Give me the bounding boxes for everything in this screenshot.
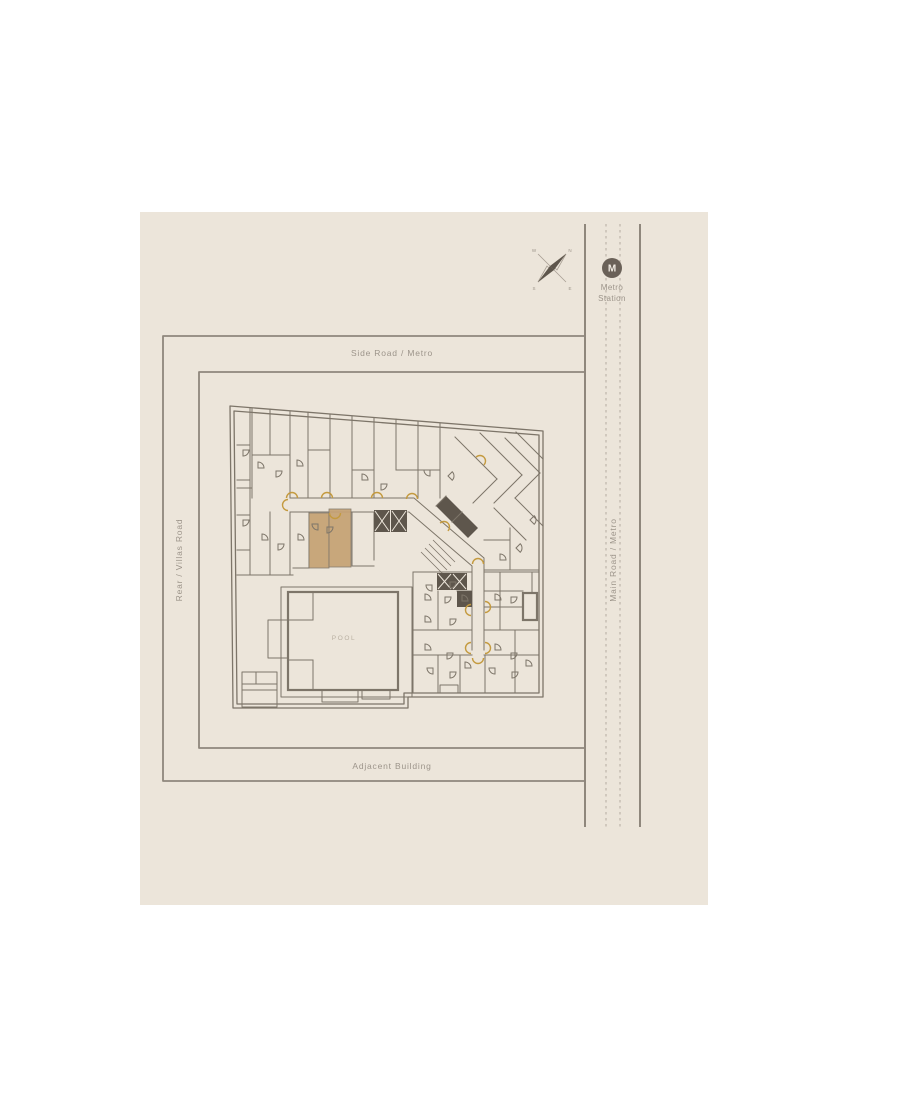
compass-north-label: N — [568, 248, 571, 253]
metro-station-line2: Station — [598, 294, 626, 303]
pool-label: POOL — [332, 635, 356, 642]
main-road-label: Main Road / Metro — [608, 518, 618, 602]
rear-road-label: Rear / Villas Road — [174, 519, 184, 602]
site-plan-page: Side Road / Metro Adjacent Building Rear… — [0, 0, 900, 1117]
highlighted-unit-room-1 — [309, 513, 329, 568]
site-panel-background — [140, 212, 708, 905]
side-road-label: Side Road / Metro — [351, 348, 433, 358]
compass-east-label: E — [568, 286, 571, 291]
metro-m-letter: M — [608, 264, 616, 275]
compass-south-label: S — [532, 286, 535, 291]
adjacent-building-label: Adjacent Building — [352, 761, 431, 771]
site-plan-canvas: Side Road / Metro Adjacent Building Rear… — [0, 0, 900, 1117]
metro-station-line1: Metro — [601, 283, 624, 292]
